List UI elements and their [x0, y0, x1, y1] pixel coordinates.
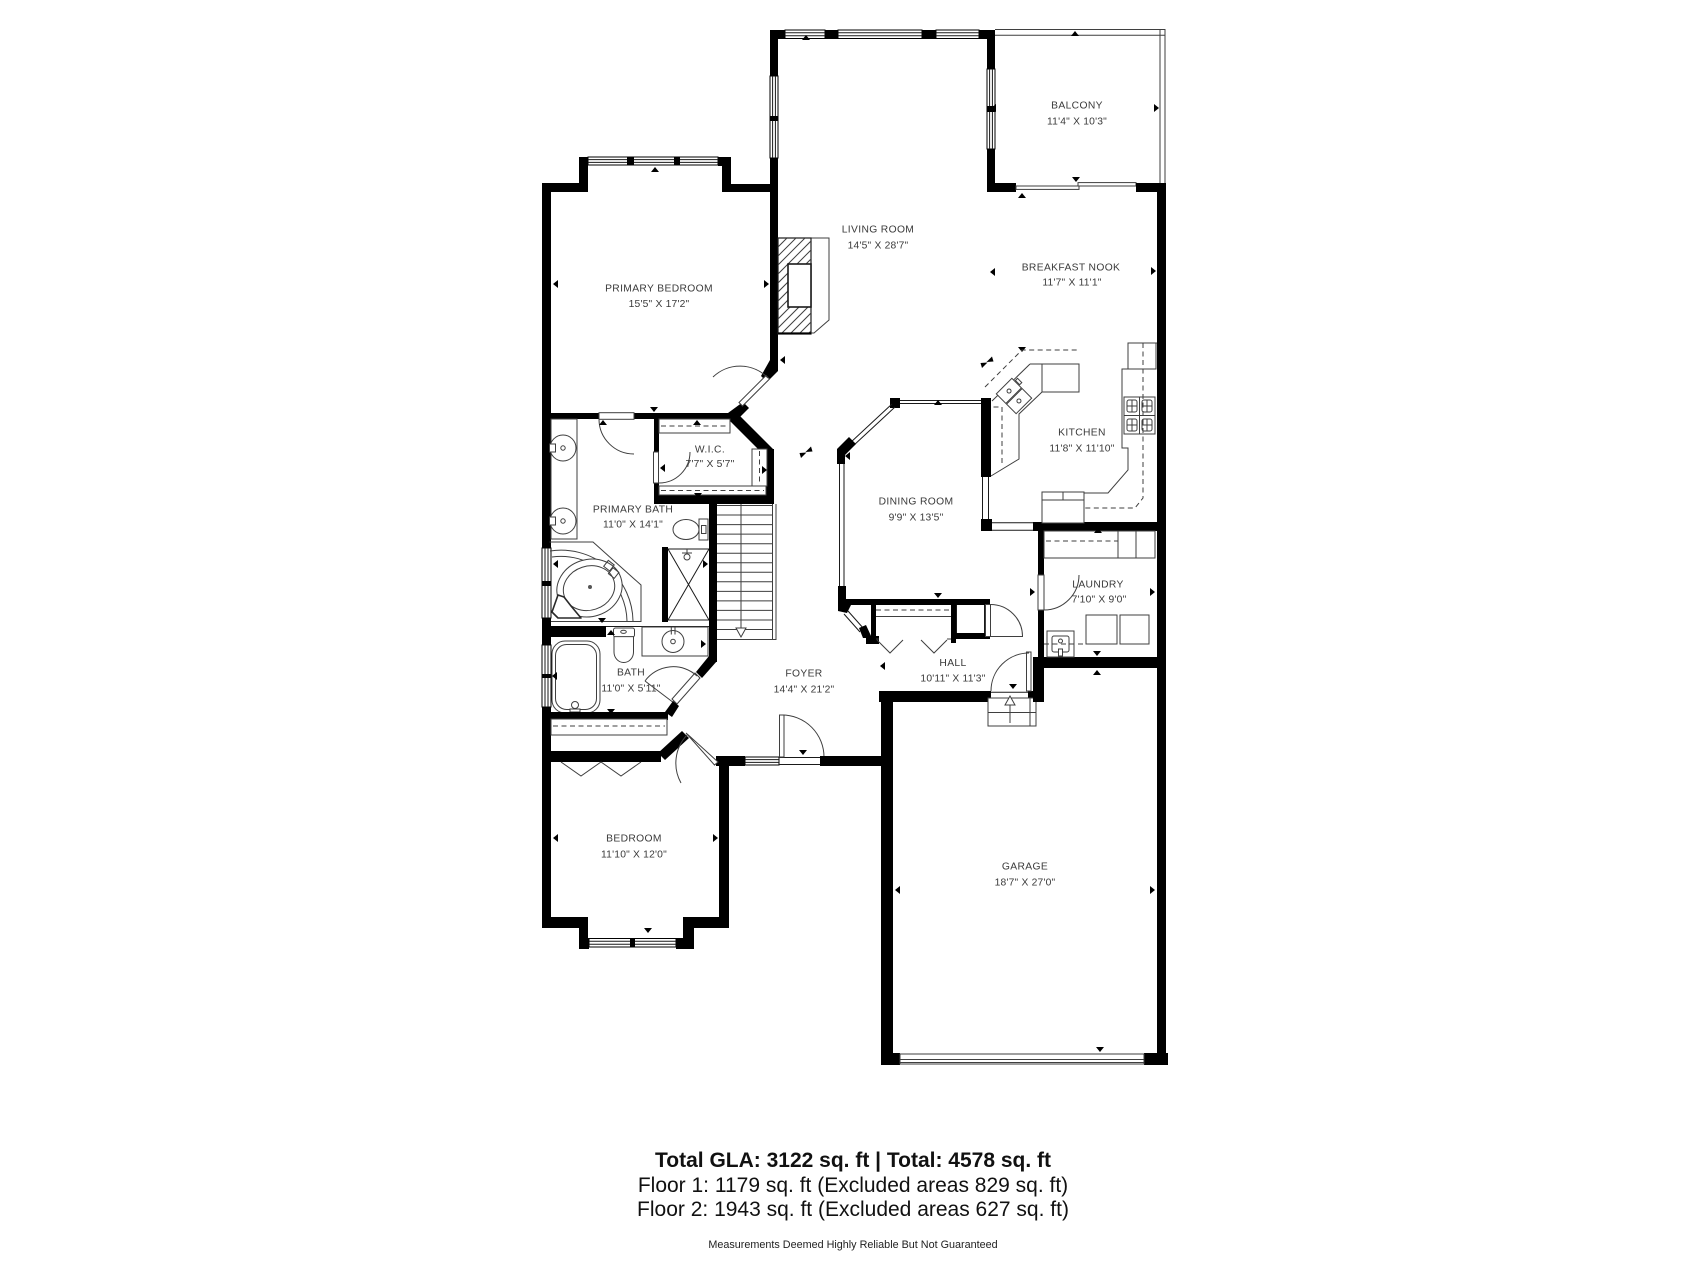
- svg-text:BREAKFAST NOOK: BREAKFAST NOOK: [1022, 263, 1121, 274]
- svg-text:10'11" X 11'3": 10'11" X 11'3": [920, 674, 985, 685]
- svg-text:FOYER: FOYER: [785, 669, 822, 680]
- svg-text:9'9" X 13'5": 9'9" X 13'5": [889, 513, 944, 524]
- svg-text:11'10" X 12'0": 11'10" X 12'0": [601, 850, 667, 861]
- svg-text:BATH: BATH: [617, 668, 645, 679]
- svg-text:Measurements Deemed Highly Rel: Measurements Deemed Highly Reliable But …: [708, 1239, 997, 1251]
- svg-text:15'5" X 17'2": 15'5" X 17'2": [629, 299, 690, 310]
- svg-text:11'7" X 11'1": 11'7" X 11'1": [1042, 278, 1101, 289]
- svg-text:11'0" X 5'11": 11'0" X 5'11": [601, 684, 660, 695]
- svg-text:LIVING ROOM: LIVING ROOM: [842, 225, 915, 236]
- svg-text:11'0" X 14'1": 11'0" X 14'1": [603, 520, 663, 531]
- svg-text:KITCHEN: KITCHEN: [1058, 428, 1106, 439]
- svg-text:7'7" X 5'7": 7'7" X 5'7": [686, 459, 735, 470]
- svg-text:18'7" X 27'0": 18'7" X 27'0": [995, 878, 1056, 889]
- svg-text:14'4" X 21'2": 14'4" X 21'2": [774, 685, 835, 696]
- svg-text:PRIMARY BEDROOM: PRIMARY BEDROOM: [605, 284, 713, 295]
- svg-text:GARAGE: GARAGE: [1002, 862, 1048, 873]
- svg-text:W.I.C.: W.I.C.: [695, 445, 725, 456]
- svg-text:Total GLA: 3122 sq. ft | Total: Total GLA: 3122 sq. ft | Total: 4578 sq.…: [655, 1149, 1051, 1172]
- svg-text:11'4" X 10'3": 11'4" X 10'3": [1047, 117, 1107, 128]
- svg-text:HALL: HALL: [939, 658, 966, 669]
- svg-text:11'8" X 11'10": 11'8" X 11'10": [1049, 444, 1114, 455]
- svg-text:BALCONY: BALCONY: [1051, 101, 1103, 112]
- svg-text:Floor 1: 1179 sq. ft (Excluded: Floor 1: 1179 sq. ft (Excluded areas 829…: [638, 1174, 1068, 1197]
- svg-text:14'5" X 28'7": 14'5" X 28'7": [848, 241, 909, 252]
- svg-text:DINING ROOM: DINING ROOM: [879, 497, 954, 508]
- svg-text:LAUNDRY: LAUNDRY: [1072, 580, 1123, 591]
- svg-text:PRIMARY BATH: PRIMARY BATH: [593, 505, 673, 516]
- svg-text:Floor 2: 1943 sq. ft (Excluded: Floor 2: 1943 sq. ft (Excluded areas 627…: [637, 1198, 1069, 1221]
- svg-text:BEDROOM: BEDROOM: [606, 834, 662, 845]
- svg-text:7'10" X 9'0": 7'10" X 9'0": [1072, 595, 1127, 606]
